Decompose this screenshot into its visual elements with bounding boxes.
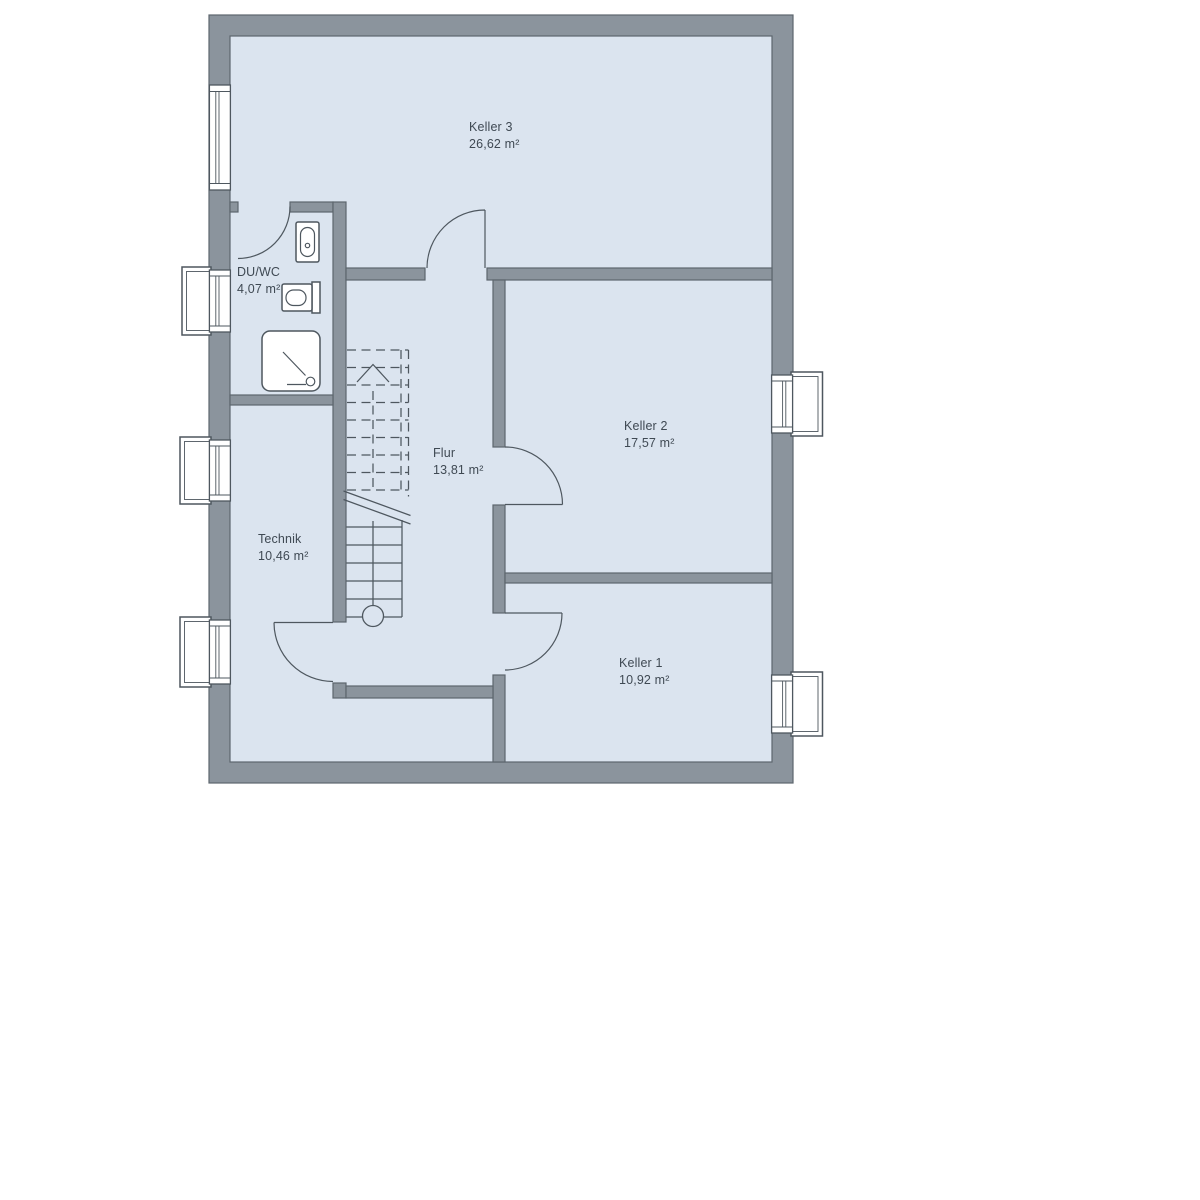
wall	[493, 675, 505, 762]
room-area: 13,81 m²	[433, 462, 484, 479]
window	[209, 85, 230, 190]
light-well	[180, 617, 212, 687]
light-well	[180, 437, 212, 504]
wall	[505, 573, 772, 583]
room-name: Keller 1	[619, 655, 670, 672]
room-area: 10,92 m²	[619, 672, 670, 689]
wall	[230, 395, 333, 405]
room-name: Technik	[258, 531, 309, 548]
window	[772, 375, 793, 433]
room-area: 17,57 m²	[624, 435, 675, 452]
room-area: 26,62 m²	[469, 136, 520, 153]
wall	[493, 280, 505, 447]
sink	[296, 222, 319, 262]
room-label-duwc: DU/WC 4,07 m²	[237, 264, 280, 297]
wall	[493, 505, 505, 613]
light-well	[182, 267, 212, 335]
room-name: Keller 3	[469, 119, 520, 136]
window	[209, 440, 230, 501]
light-well	[791, 672, 823, 736]
room-label-flur: Flur 13,81 m²	[433, 445, 484, 478]
wall	[333, 202, 346, 622]
window	[772, 675, 793, 733]
floor-plan: Keller 3 26,62 m² Keller 2 17,57 m² Kell…	[0, 0, 1200, 1200]
window	[209, 620, 230, 684]
window	[209, 270, 230, 332]
wall	[346, 686, 493, 698]
floor-plan-drawing	[0, 0, 1200, 1200]
wall	[290, 202, 333, 212]
wall	[346, 268, 425, 280]
room-area: 4,07 m²	[237, 281, 280, 298]
wall	[230, 202, 238, 212]
room-label-keller1: Keller 1 10,92 m²	[619, 655, 670, 688]
room-name: DU/WC	[237, 264, 280, 281]
wall	[333, 683, 346, 698]
toilet	[282, 282, 320, 313]
light-well	[791, 372, 823, 436]
room-name: Flur	[433, 445, 484, 462]
room-label-keller3: Keller 3 26,62 m²	[469, 119, 520, 152]
room-label-technik: Technik 10,46 m²	[258, 531, 309, 564]
shower	[262, 331, 320, 391]
room-label-keller2: Keller 2 17,57 m²	[624, 418, 675, 451]
wall	[487, 268, 772, 280]
stair-newel-post	[363, 606, 384, 627]
room-area: 10,46 m²	[258, 548, 309, 565]
room-name: Keller 2	[624, 418, 675, 435]
